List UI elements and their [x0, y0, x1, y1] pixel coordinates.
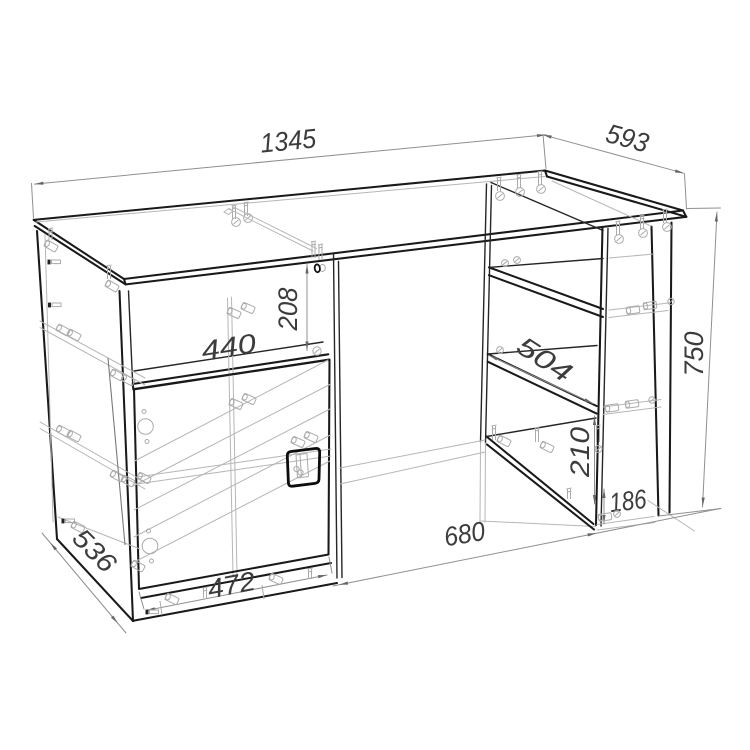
- svg-text:208: 208: [273, 288, 303, 332]
- svg-text:750: 750: [679, 331, 709, 376]
- svg-text:210: 210: [565, 427, 595, 478]
- svg-text:1345: 1345: [259, 123, 319, 158]
